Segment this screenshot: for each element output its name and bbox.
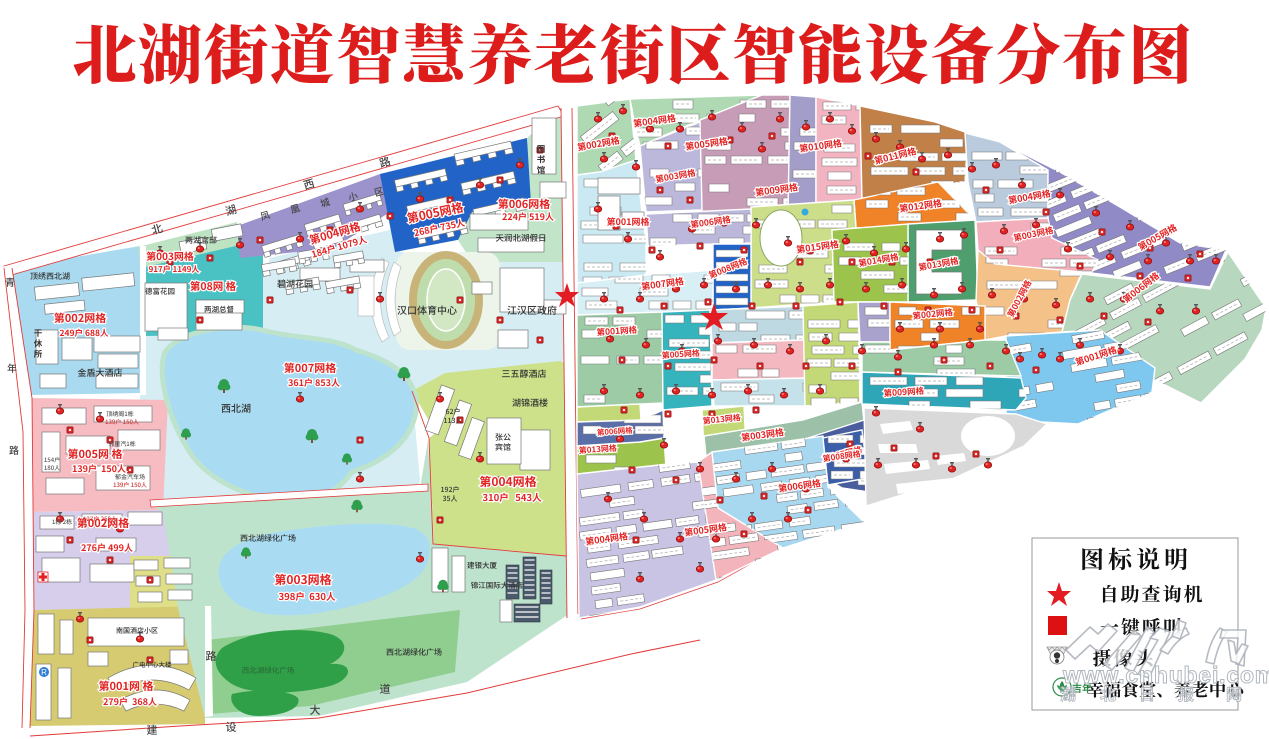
svg-text:www.cnhubei.com: www.cnhubei.com: [1062, 662, 1269, 688]
svg-text:R: R: [41, 668, 47, 677]
